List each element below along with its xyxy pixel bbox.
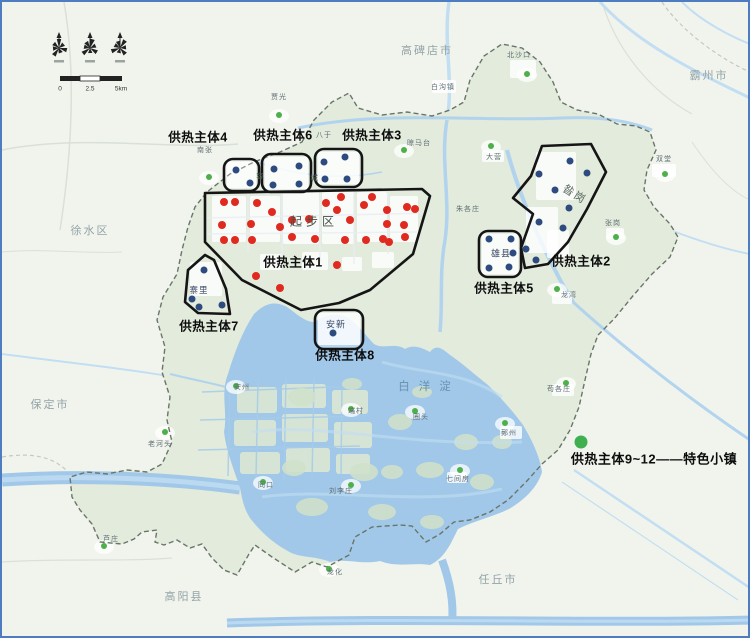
heat-source-dot-red bbox=[220, 198, 228, 206]
heating-zone-4 bbox=[224, 159, 259, 191]
heating-zone-3 bbox=[315, 149, 362, 187]
heat-source-dot-red bbox=[288, 216, 296, 224]
town-dot bbox=[233, 383, 239, 389]
town-dot bbox=[260, 479, 266, 485]
heat-source-dot-blue bbox=[506, 264, 513, 271]
heating-zone-6 bbox=[262, 154, 311, 192]
heat-source-dot-blue bbox=[322, 176, 329, 183]
town-dot bbox=[488, 143, 494, 149]
heat-source-dot-red bbox=[268, 208, 276, 216]
heat-source-dot-blue bbox=[296, 163, 303, 170]
heat-source-dot-blue bbox=[189, 296, 196, 303]
heat-source-dot-red bbox=[333, 206, 341, 214]
heat-source-dot-red bbox=[288, 233, 296, 241]
heat-source-dot-blue bbox=[510, 250, 517, 257]
heat-source-dot-blue bbox=[567, 158, 574, 165]
heat-source-dot-red bbox=[385, 238, 393, 246]
town-dot bbox=[457, 467, 463, 473]
heat-source-dot-blue bbox=[508, 236, 515, 243]
heat-source-dot-red bbox=[368, 193, 376, 201]
heat-source-dot-red bbox=[276, 284, 284, 292]
heat-source-dot-blue bbox=[536, 219, 543, 226]
heat-source-dot-blue bbox=[201, 267, 208, 274]
heat-source-dot-blue bbox=[552, 187, 559, 194]
heat-source-dot-red bbox=[401, 233, 409, 241]
heat-source-dot-blue bbox=[219, 302, 226, 309]
legend-green-dot bbox=[575, 436, 588, 449]
heat-source-dot-red bbox=[360, 201, 368, 209]
heat-source-dot-red bbox=[341, 236, 349, 244]
heat-source-dot-red bbox=[337, 193, 345, 201]
heat-source-dot-blue bbox=[584, 170, 591, 177]
heat-source-dot-red bbox=[231, 198, 239, 206]
heat-source-dot-blue bbox=[486, 265, 493, 272]
heat-source-dot-red bbox=[400, 221, 408, 229]
town-dot bbox=[348, 406, 354, 412]
heat-source-dot-red bbox=[253, 199, 261, 207]
heat-source-dot-blue bbox=[271, 166, 278, 173]
planning-map: 高碑店市霸州市徐水区保定市高阳县任丘市白沟镇北沙口双堂大营晾马台朱各庄八于贾光南… bbox=[0, 0, 750, 638]
heat-source-dot-blue bbox=[321, 159, 328, 166]
town-dot bbox=[326, 566, 332, 572]
heat-source-dot-red bbox=[231, 236, 239, 244]
town-dot bbox=[662, 171, 668, 177]
town-dot bbox=[162, 429, 168, 435]
heat-source-dot-red bbox=[411, 205, 419, 213]
heat-source-dot-red bbox=[383, 206, 391, 214]
heating-zone-8 bbox=[315, 310, 363, 349]
heat-source-dot-red bbox=[362, 236, 370, 244]
town-dot bbox=[206, 174, 212, 180]
town-dot bbox=[524, 71, 530, 77]
town-dot bbox=[554, 286, 560, 292]
heat-source-dot-red bbox=[403, 203, 411, 211]
heat-source-dot-blue bbox=[344, 176, 351, 183]
heat-source-dot-red bbox=[333, 261, 341, 269]
town-dot bbox=[276, 112, 282, 118]
heat-source-dot-blue bbox=[233, 167, 240, 174]
heat-source-dot-red bbox=[220, 236, 228, 244]
heat-source-dot-blue bbox=[533, 257, 540, 264]
town-dot bbox=[401, 147, 407, 153]
heat-source-dot-red bbox=[305, 215, 313, 223]
town-dot bbox=[101, 543, 107, 549]
heat-source-dot-red bbox=[311, 235, 319, 243]
heat-source-dot-red bbox=[248, 236, 256, 244]
heat-source-dot-red bbox=[247, 220, 255, 228]
town-dot bbox=[502, 420, 508, 426]
heat-source-dot-blue bbox=[296, 181, 303, 188]
heat-source-dot-blue bbox=[247, 180, 254, 187]
town-dot bbox=[613, 234, 619, 240]
heat-source-dot-red bbox=[252, 272, 260, 280]
heat-source-dot-blue bbox=[523, 246, 530, 253]
heat-source-dot-blue bbox=[566, 205, 573, 212]
heat-source-dot-red bbox=[218, 221, 226, 229]
heat-source-dot-blue bbox=[330, 330, 337, 337]
town-dot bbox=[412, 408, 418, 414]
heat-source-dot-blue bbox=[196, 304, 203, 311]
town-dot bbox=[563, 380, 569, 386]
basemap-canvas bbox=[2, 2, 750, 638]
heat-source-dot-red bbox=[322, 199, 330, 207]
heat-source-dot-blue bbox=[342, 154, 349, 161]
heat-source-dot-blue bbox=[536, 171, 543, 178]
heat-source-dot-red bbox=[383, 220, 391, 228]
heat-source-dot-blue bbox=[270, 182, 277, 189]
heat-source-dot-red bbox=[276, 223, 284, 231]
town-dot bbox=[348, 482, 354, 488]
heat-source-dot-blue bbox=[560, 225, 567, 232]
heat-source-dot-red bbox=[346, 216, 354, 224]
heat-source-dot-blue bbox=[486, 236, 493, 243]
